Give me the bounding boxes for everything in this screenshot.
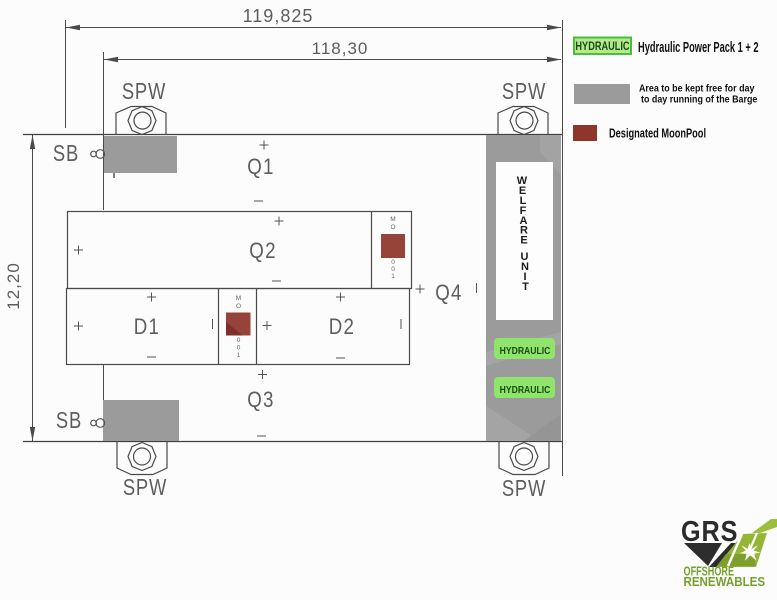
svg-text:HYDRAULIC: HYDRAULIC — [500, 384, 551, 396]
svg-text:SPW: SPW — [502, 476, 546, 501]
svg-text:M: M — [390, 216, 395, 223]
svg-text:Q4: Q4 — [435, 282, 462, 306]
svg-text:O: O — [390, 224, 395, 231]
svg-text:RENEWABLES: RENEWABLES — [684, 574, 766, 589]
svg-text:E: E — [520, 235, 527, 247]
svg-text:SPW: SPW — [123, 475, 167, 500]
svg-text:M: M — [236, 295, 241, 302]
svg-text:Q3: Q3 — [247, 389, 274, 413]
svg-text:1: 1 — [391, 273, 395, 280]
svg-text:SB: SB — [56, 408, 82, 433]
svg-text:SPW: SPW — [502, 79, 546, 104]
svg-text:SB: SB — [53, 141, 79, 166]
svg-text:Q1: Q1 — [247, 156, 274, 180]
svg-text:12,20: 12,20 — [4, 262, 23, 310]
svg-text:T: T — [522, 281, 529, 293]
svg-text:D1: D1 — [134, 316, 160, 340]
svg-text:Designated MoonPool: Designated MoonPool — [609, 127, 706, 141]
svg-text:SPW: SPW — [122, 79, 166, 104]
svg-text:0: 0 — [391, 266, 395, 273]
svg-text:118,30: 118,30 — [312, 39, 369, 58]
svg-text:0: 0 — [391, 259, 395, 266]
svg-text:GRS: GRS — [681, 514, 738, 547]
svg-text:1: 1 — [237, 352, 241, 359]
svg-text:HYDRAULIC: HYDRAULIC — [575, 41, 630, 53]
svg-text:0: 0 — [237, 337, 241, 344]
svg-text:O: O — [236, 303, 241, 310]
svg-text:D2: D2 — [329, 316, 355, 340]
svg-text:Hydraulic Power Pack 1 + 2: Hydraulic Power Pack 1 + 2 — [638, 39, 759, 56]
svg-text:0: 0 — [237, 345, 241, 352]
svg-text:HYDRAULIC: HYDRAULIC — [500, 345, 551, 357]
svg-text:to day running of the Barge: to day running of the Barge — [641, 94, 758, 106]
svg-text:Q2: Q2 — [249, 240, 276, 264]
svg-text:119,825: 119,825 — [243, 6, 314, 26]
